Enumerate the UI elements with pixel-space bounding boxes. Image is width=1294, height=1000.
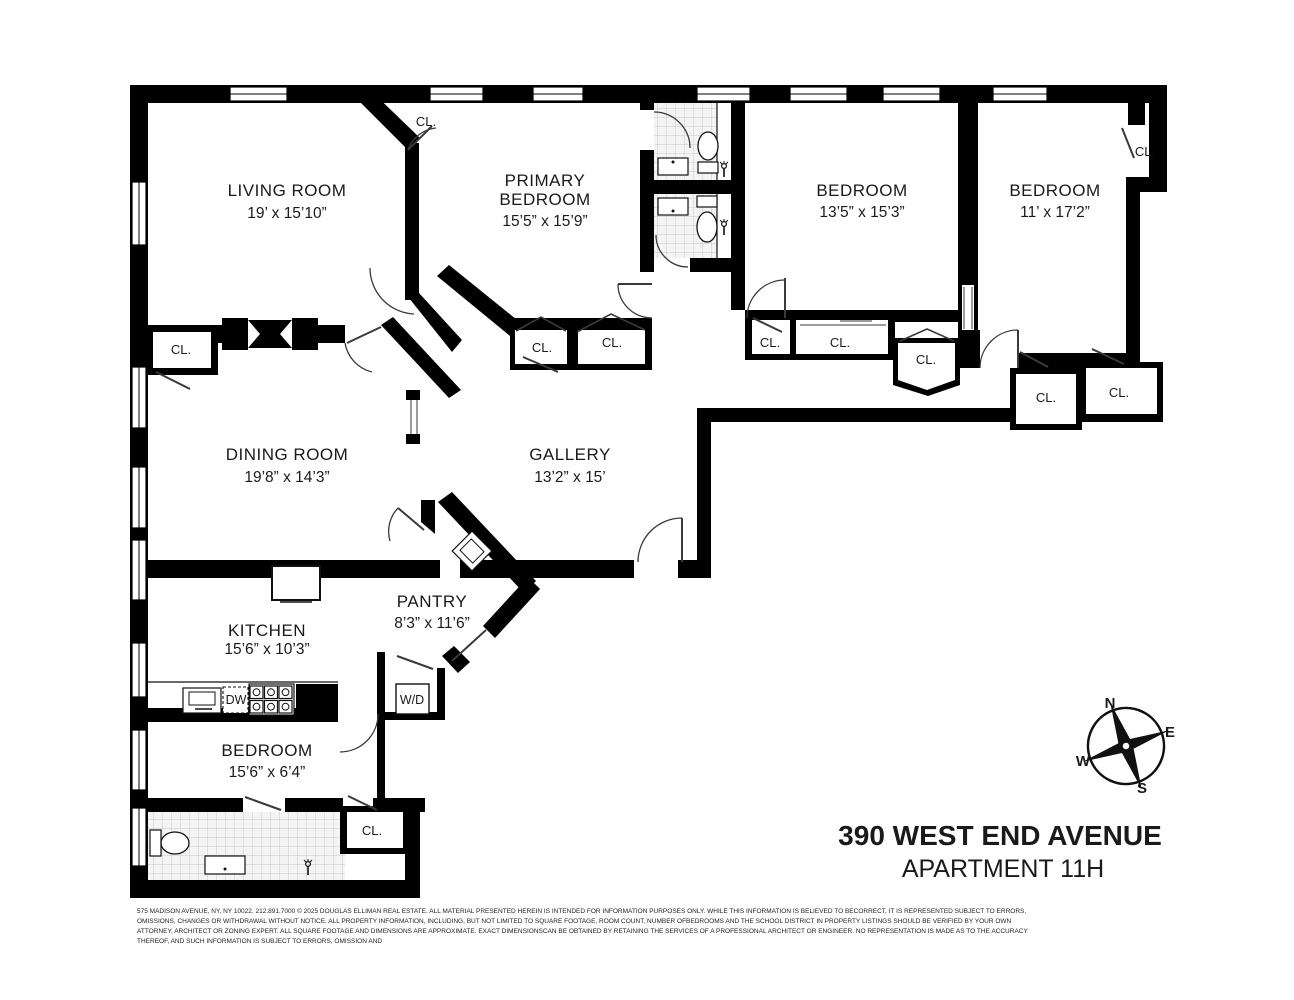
label-bedroom3-dims: 11’ x 17’2” xyxy=(1020,204,1090,221)
label-kitchen-name: KITCHEN xyxy=(228,621,306,640)
washer-dryer-label: W/D xyxy=(400,693,424,707)
compass-rose: N E W S xyxy=(1067,687,1185,805)
floor-plan-svg: N E W S LIVING ROOM 19’ x 15’10” PRIMARY… xyxy=(0,0,1294,1000)
bathroom3-sink xyxy=(205,856,245,874)
closet-label-bottom: CL. xyxy=(362,823,382,838)
label-gallery-name: GALLERY xyxy=(529,445,611,464)
bathroom2-toilet xyxy=(697,212,717,242)
bathroom3-toilet xyxy=(161,832,189,854)
compass-north: N xyxy=(1105,695,1116,712)
disclaimer-line4: THEREOF, AND SUCH INFORMATION IS SUBJECT… xyxy=(137,938,382,945)
dishwasher-label: DW xyxy=(226,693,247,707)
closet-label-living-left: CL. xyxy=(171,342,191,357)
kitchen-fridge xyxy=(272,566,320,600)
label-kitchen-dims: 15’6” x 10’3” xyxy=(224,641,309,658)
label-bedroom4-dims: 15’6” x 6’4” xyxy=(229,764,306,781)
closet-label-bedroom3-top: CL. xyxy=(1135,144,1155,159)
plan-title: 390 WEST END AVENUE APARTMENT 11H xyxy=(838,820,1162,883)
label-bedroom3-name: BEDROOM xyxy=(1009,181,1100,200)
label-primary-bedroom-name2: BEDROOM xyxy=(499,190,590,209)
shower-icon xyxy=(720,219,728,235)
floor-plan-page: N E W S LIVING ROOM 19’ x 15’10” PRIMARY… xyxy=(0,0,1294,1000)
compass-east: E xyxy=(1165,724,1175,741)
closet-label-primary-corner: CL. xyxy=(416,114,436,129)
disclaimer-block: 575 MADISON AVENUE, NY, NY 10022. 212.89… xyxy=(137,907,1028,945)
label-bedroom2-dims: 13’5” x 15’3” xyxy=(819,204,904,221)
closet-label-bedroom2-a: CL. xyxy=(760,335,780,350)
label-gallery-dims: 13’2” x 15’ xyxy=(534,469,606,486)
closet-label-bedroom2-c: CL. xyxy=(916,352,936,367)
apartment-subtitle: APARTMENT 11H xyxy=(902,855,1104,883)
label-living-room-name: LIVING ROOM xyxy=(228,181,347,200)
label-bedroom4-name: BEDROOM xyxy=(221,741,312,760)
label-pantry-dims: 8’3” x 11’6” xyxy=(394,615,470,632)
label-primary-bedroom-dims: 15’5” x 15’9” xyxy=(502,213,587,230)
label-pantry-name: PANTRY xyxy=(397,592,467,611)
bathroom1-toilet xyxy=(698,132,718,160)
closet-label-corridor-a: CL. xyxy=(1036,390,1056,405)
disclaimer-line3: ATTORNEY, ARCHITECT OR ZONING EXPERT. AL… xyxy=(137,928,1028,935)
compass-west: W xyxy=(1076,753,1091,770)
disclaimer-line1: 575 MADISON AVENUE, NY, NY 10022. 212.89… xyxy=(137,907,1026,915)
label-bedroom2-name: BEDROOM xyxy=(816,181,907,200)
closet-label-corridor-b: CL. xyxy=(1109,385,1129,400)
closet-label-primary-a: CL. xyxy=(532,340,552,355)
address-title: 390 WEST END AVENUE xyxy=(838,820,1162,851)
closet-label-bedroom2-b: CL. xyxy=(830,335,850,350)
label-living-room-dims: 19’ x 15’10” xyxy=(247,205,327,222)
compass-south: S xyxy=(1137,780,1147,797)
shower-icon xyxy=(720,161,728,177)
label-dining-room-name: DINING ROOM xyxy=(226,445,349,464)
label-dining-room-dims: 19’8” x 14’3” xyxy=(244,469,329,486)
label-primary-bedroom-name1: PRIMARY xyxy=(505,171,586,190)
closet-label-primary-b: CL. xyxy=(602,335,622,350)
disclaimer-line2: OMISSIONS, CHANGES OR WITHDRAWAL WITHOUT… xyxy=(137,918,1012,925)
